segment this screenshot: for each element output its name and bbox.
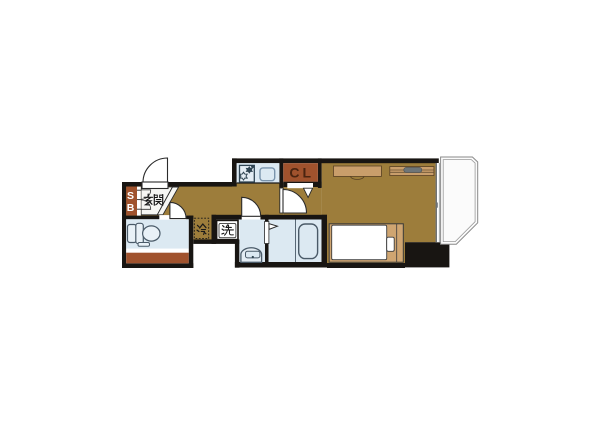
svg-text:C: C — [289, 165, 299, 181]
svg-text:L: L — [303, 165, 312, 181]
svg-text:B: B — [127, 202, 135, 214]
svg-text:S: S — [127, 190, 134, 202]
